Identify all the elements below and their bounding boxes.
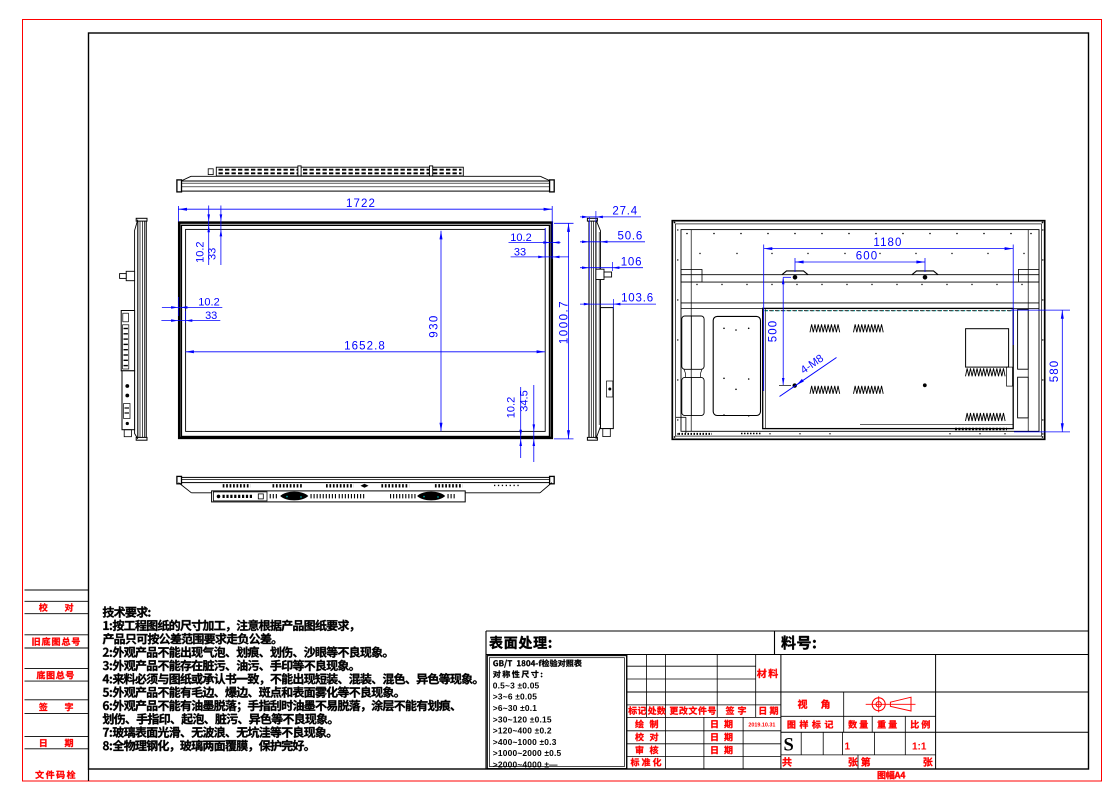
svg-text:10.2: 10.2: [194, 241, 206, 262]
svg-text:600: 600: [856, 250, 879, 262]
svg-text:33: 33: [205, 310, 217, 322]
svg-text:S: S: [784, 736, 794, 756]
svg-text:106: 106: [621, 256, 643, 268]
svg-text:33: 33: [514, 247, 526, 259]
svg-text:1:1: 1:1: [912, 742, 927, 753]
svg-text:>6~30 ±0.1: >6~30 ±0.1: [493, 703, 537, 713]
svg-text:50.6: 50.6: [618, 230, 644, 242]
svg-text:>30~120 ±0.15: >30~120 ±0.15: [493, 714, 552, 724]
svg-text:1722: 1722: [346, 198, 376, 210]
svg-text:930: 930: [429, 314, 441, 337]
svg-text:1652.8: 1652.8: [344, 340, 386, 352]
svg-text:1180: 1180: [873, 237, 902, 249]
svg-text:10.2: 10.2: [506, 397, 518, 418]
svg-text:34.5: 34.5: [519, 390, 531, 411]
svg-text:500: 500: [768, 320, 780, 343]
svg-text:2019.10.31: 2019.10.31: [748, 722, 775, 728]
svg-text:10.2: 10.2: [198, 296, 219, 308]
svg-text:33: 33: [206, 248, 218, 260]
svg-text:27.4: 27.4: [612, 206, 638, 218]
svg-text:1: 1: [845, 742, 851, 753]
svg-text:1000.7: 1000.7: [558, 300, 570, 344]
svg-text:580: 580: [1049, 360, 1061, 383]
svg-text:>400~1000 ±0.3: >400~1000 ±0.3: [493, 737, 557, 747]
svg-text:103.6: 103.6: [621, 293, 654, 305]
svg-text:>3~6 ±0.05: >3~6 ±0.05: [493, 692, 537, 702]
svg-text:>2000~4000 ±—: >2000~4000 ±—: [493, 760, 558, 770]
svg-text:10.2: 10.2: [510, 232, 531, 244]
svg-text:>120~400 ±0.2: >120~400 ±0.2: [493, 726, 552, 736]
svg-text:>1000~2000 ±0.5: >1000~2000 ±0.5: [493, 748, 562, 758]
svg-text:0.5~3 ±0.05: 0.5~3 ±0.05: [493, 680, 540, 690]
